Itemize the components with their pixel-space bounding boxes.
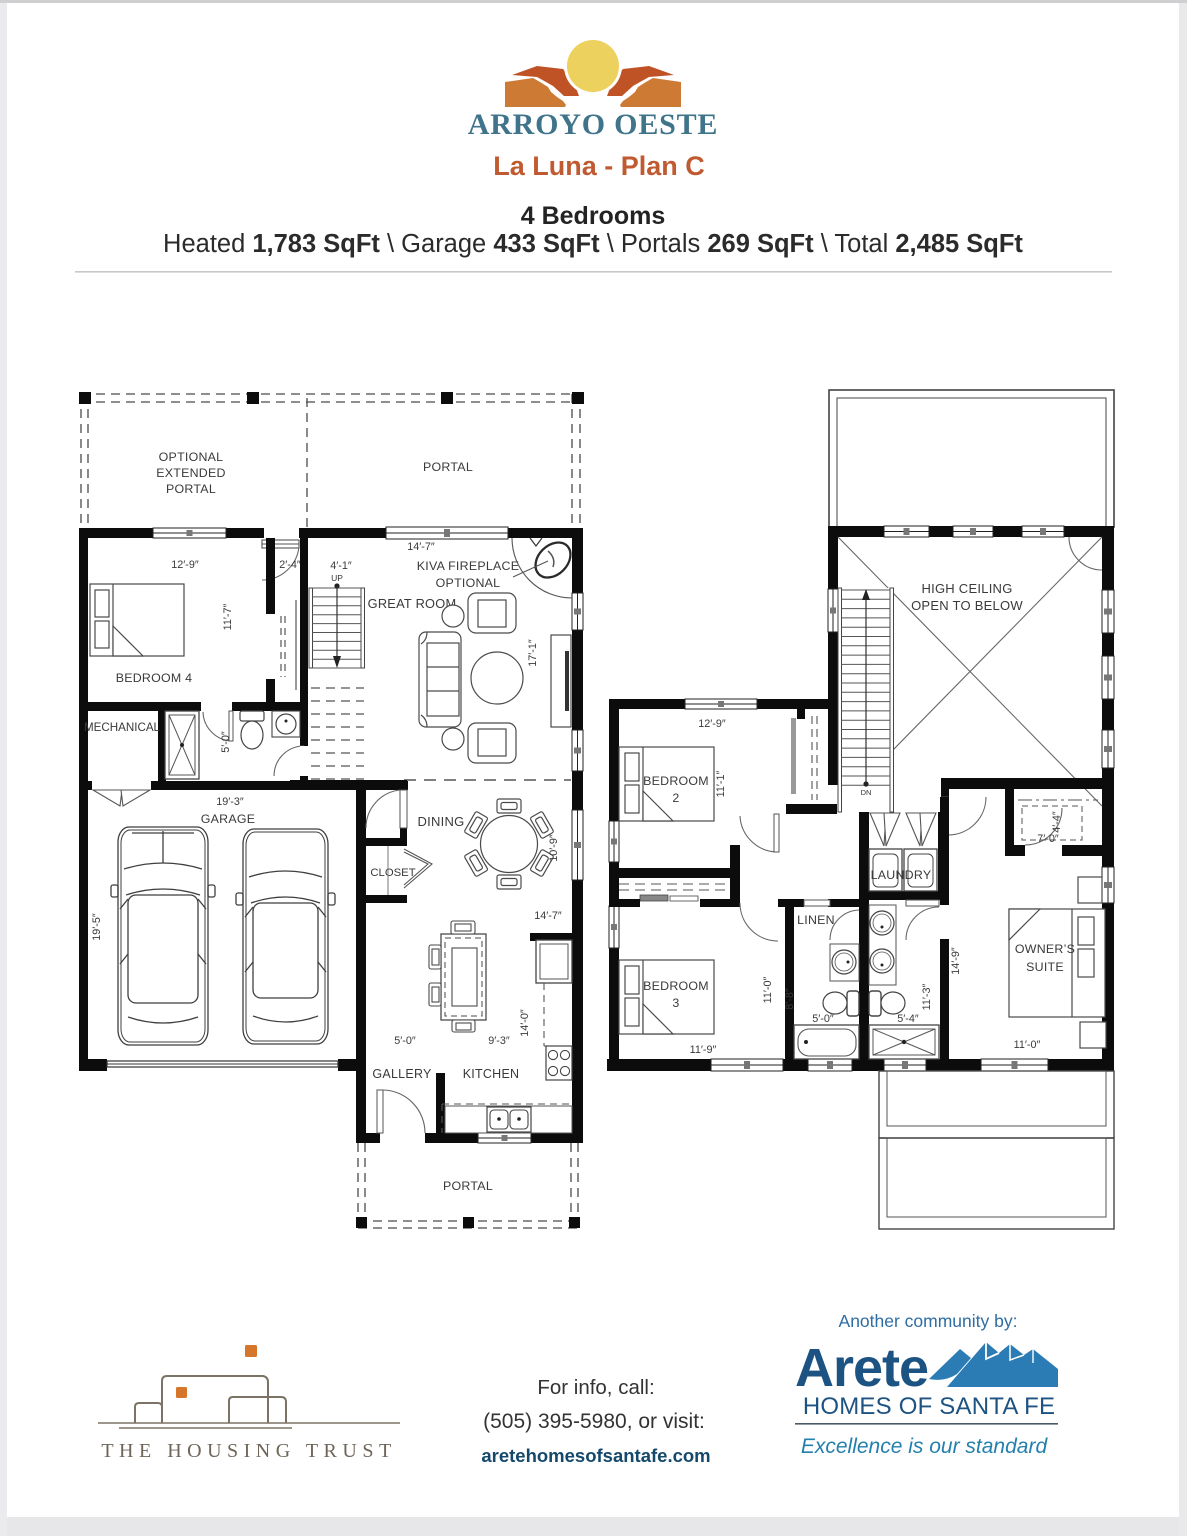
svg-text:KIVA FIREPLACE: KIVA FIREPLACE (417, 559, 519, 573)
svg-text:7′-0″: 7′-0″ (1037, 833, 1059, 845)
svg-text:UP: UP (331, 573, 343, 583)
svg-text:19′-5″: 19′-5″ (91, 913, 103, 941)
svg-text:Excellence is our standard: Excellence is our standard (801, 1435, 1049, 1458)
svg-text:14′-9″: 14′-9″ (950, 947, 962, 975)
svg-text:THE HOUSING TRUST: THE HOUSING TRUST (101, 1440, 396, 1462)
svg-text:12′-9″: 12′-9″ (698, 718, 726, 730)
svg-text:HOMES OF SANTA FE: HOMES OF SANTA FE (803, 1393, 1055, 1420)
svg-text:OPTIONAL: OPTIONAL (436, 576, 501, 590)
svg-text:GARAGE: GARAGE (201, 812, 256, 826)
svg-text:SUITE: SUITE (1026, 960, 1064, 974)
svg-text:La Luna - Plan C: La Luna - Plan C (493, 151, 705, 181)
svg-text:OPTIONAL: OPTIONAL (159, 450, 224, 464)
svg-text:GALLERY: GALLERY (372, 1067, 432, 1081)
svg-text:OPEN TO BELOW: OPEN TO BELOW (911, 598, 1023, 613)
svg-text:4′-1″: 4′-1″ (330, 560, 352, 572)
svg-text:OWNER’S: OWNER’S (1015, 942, 1075, 956)
svg-text:ARROYO OESTE: ARROYO OESTE (468, 108, 718, 141)
svg-text:17′-1″: 17′-1″ (527, 639, 539, 667)
svg-text:BEDROOM: BEDROOM (643, 979, 709, 993)
svg-text:3: 3 (672, 996, 679, 1010)
svg-text:11′-9″: 11′-9″ (690, 1044, 717, 1056)
svg-text:Another community by:: Another community by: (839, 1311, 1018, 1331)
svg-text:Heated 1,783 SqFt \ Garage 4: Heated 1,783 SqFt \ Garage 433 SqFt \ Po… (163, 230, 1023, 258)
svg-text:PORTAL: PORTAL (443, 1179, 493, 1193)
svg-text:12′-9″: 12′-9″ (171, 559, 199, 571)
svg-text:MECHANICAL: MECHANICAL (84, 721, 161, 734)
svg-text:9′-3″: 9′-3″ (488, 1035, 510, 1047)
svg-text:BEDROOM: BEDROOM (643, 774, 709, 788)
svg-text:4′-4″: 4′-4″ (1051, 811, 1063, 833)
svg-text:14′-7″: 14′-7″ (534, 910, 562, 922)
svg-text:5′-0″: 5′-0″ (812, 1013, 834, 1025)
svg-text:10′-9″: 10′-9″ (548, 834, 560, 862)
svg-text:(505) 395-5980, or visit:: (505) 395-5980, or visit: (483, 1410, 705, 1433)
svg-text:11′-3″: 11′-3″ (921, 983, 933, 1010)
svg-text:For info, call:: For info, call: (537, 1376, 654, 1399)
svg-text:11′-7″: 11′-7″ (222, 603, 234, 630)
svg-text:5′-4″: 5′-4″ (897, 1013, 919, 1025)
svg-text:PORTAL: PORTAL (423, 460, 473, 474)
svg-text:CLOSET: CLOSET (370, 867, 415, 879)
svg-text:PORTAL: PORTAL (166, 482, 216, 496)
svg-text:2′-4″: 2′-4″ (279, 559, 301, 571)
svg-text:aretehomesofsantafe.com: aretehomesofsantafe.com (481, 1445, 710, 1466)
svg-text:HIGH CEILING: HIGH CEILING (921, 581, 1012, 596)
svg-text:LAUNDRY: LAUNDRY (871, 868, 932, 882)
svg-text:DINING: DINING (418, 814, 465, 829)
svg-text:2: 2 (672, 791, 679, 805)
svg-text:11′-1″: 11′-1″ (715, 770, 727, 797)
svg-text:19′-3″: 19′-3″ (216, 796, 244, 808)
svg-text:GREAT ROOM: GREAT ROOM (368, 596, 457, 611)
svg-text:8′-8″: 8′-8″ (784, 988, 796, 1010)
svg-text:Arete: Arete (795, 1338, 928, 1398)
svg-text:BEDROOM 4: BEDROOM 4 (116, 671, 193, 685)
svg-text:11′-0″: 11′-0″ (762, 976, 774, 1003)
svg-text:5′-0″: 5′-0″ (220, 731, 232, 753)
svg-text:5′-0″: 5′-0″ (394, 1035, 416, 1047)
svg-text:11′-0″: 11′-0″ (1014, 1039, 1041, 1051)
svg-text:DN: DN (861, 788, 872, 797)
svg-text:EXTENDED: EXTENDED (156, 466, 225, 480)
svg-text:14′-0″: 14′-0″ (519, 1009, 531, 1037)
svg-text:14′-7″: 14′-7″ (407, 541, 435, 553)
svg-text:LINEN: LINEN (797, 913, 835, 927)
svg-text:KITCHEN: KITCHEN (463, 1067, 520, 1081)
svg-text:4 Bedrooms: 4 Bedrooms (521, 202, 665, 230)
